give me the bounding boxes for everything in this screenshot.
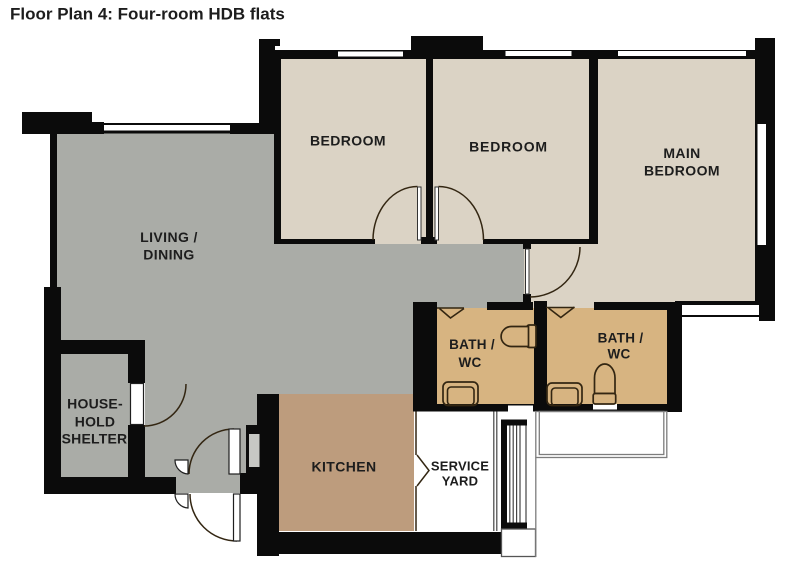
svg-text:BEDROOM: BEDROOM — [310, 133, 386, 149]
svg-text:BEDROOM: BEDROOM — [644, 163, 720, 179]
svg-text:BATH /: BATH / — [449, 337, 495, 352]
svg-text:HOLD: HOLD — [75, 414, 115, 430]
svg-text:SERVICE: SERVICE — [431, 459, 489, 474]
svg-text:LIVING /: LIVING / — [140, 229, 198, 245]
svg-text:SHELTER: SHELTER — [62, 431, 128, 447]
svg-text:BATH /: BATH / — [598, 331, 644, 346]
svg-text:Floor Plan 4: Four-room HDB fl: Floor Plan 4: Four-room HDB flats — [10, 5, 285, 24]
svg-text:KITCHEN: KITCHEN — [311, 459, 376, 475]
svg-text:WC: WC — [607, 347, 630, 362]
svg-text:YARD: YARD — [442, 474, 478, 489]
svg-text:MAIN: MAIN — [663, 145, 700, 161]
svg-text:WC: WC — [458, 355, 481, 370]
svg-text:DINING: DINING — [143, 247, 194, 263]
svg-text:BEDROOM: BEDROOM — [469, 139, 548, 155]
svg-text:HOUSE-: HOUSE- — [67, 396, 123, 412]
